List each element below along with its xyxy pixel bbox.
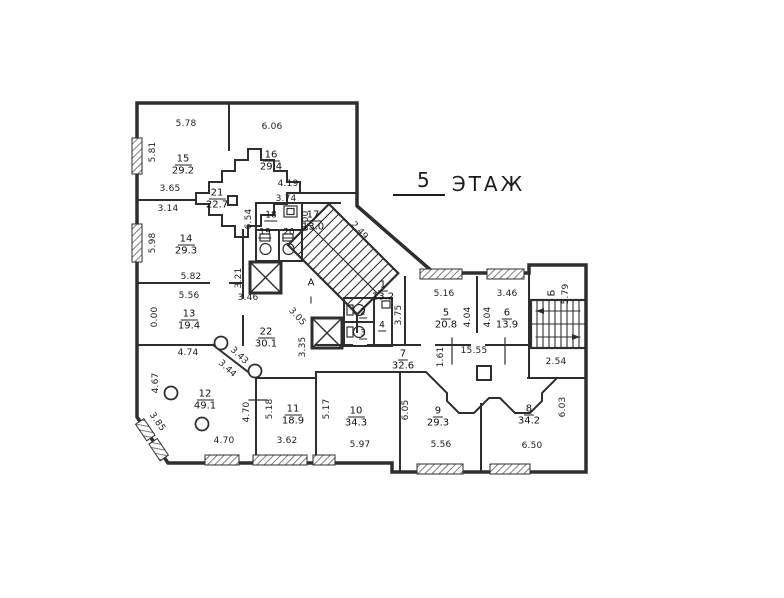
room-label-2: 2 [359, 308, 367, 319]
sink-icon [284, 206, 297, 217]
floor-number: 5 [393, 168, 445, 196]
room-label-22: 2230.1 [255, 321, 277, 350]
dimension: 3.35 [298, 337, 308, 358]
room-number: 9 [433, 406, 443, 418]
dimension: 5.97 [350, 440, 371, 450]
dimension: 6.05 [401, 400, 411, 421]
room-label-9: 929.3 [427, 400, 449, 429]
room-label-10: 1034.3 [345, 400, 367, 429]
elevator-2 [312, 318, 342, 348]
room-label-13: 1319.4 [178, 303, 200, 332]
dimension: 5.81 [148, 142, 158, 163]
room-area: 32.6 [392, 361, 414, 372]
room-number: 13 [181, 309, 198, 321]
dimension: 6.50 [522, 441, 543, 451]
dimension: 4.04 [463, 307, 473, 328]
room-number: 8 [524, 404, 534, 416]
room-area: 13.9 [496, 320, 518, 331]
dimension: 4.67 [151, 373, 161, 394]
room-area: 19.4 [178, 321, 200, 332]
dimension: 5.82 [181, 272, 202, 282]
room-label-20: 20 [282, 228, 295, 239]
dimension: 3.21 [234, 268, 244, 289]
room-area: 22.7 [206, 200, 228, 211]
room-label-14: 1429.3 [175, 228, 197, 257]
room-area: 29.2 [172, 166, 194, 177]
dimension: 5.98 [148, 233, 158, 254]
room-number: 16 [263, 150, 280, 162]
dimension: 6.06 [262, 122, 283, 132]
dimension: 3.46 [497, 289, 518, 299]
room-number: 22 [258, 327, 275, 339]
dimension: 5.17 [322, 399, 332, 420]
dimension: 4.04 [483, 307, 493, 328]
room-label-7: 732.6 [392, 343, 414, 372]
dimension: 4.19 [278, 179, 299, 189]
room-area: 30.1 [255, 339, 277, 350]
dimension: 3.75 [394, 305, 404, 326]
drawing-title: 5 ЭТАЖ [393, 168, 525, 196]
room-number: 15 [175, 154, 192, 166]
toilet-icon [347, 327, 353, 337]
room-label-19: 19 [258, 228, 271, 239]
dimension: 5.56 [431, 440, 452, 450]
room-label-5: 520.8 [435, 302, 457, 331]
room-label-8: 834.2 [518, 398, 540, 427]
dimension: 3.74 [276, 194, 297, 204]
dimension: 3.14 [158, 204, 179, 214]
room-label-3: 3 [359, 329, 367, 340]
room-area: 29.4 [260, 162, 282, 173]
room-number: 10 [348, 406, 365, 418]
room-area: 49.1 [194, 401, 216, 412]
room-area: 34.3 [345, 418, 367, 429]
grid-mark-i: I [310, 296, 313, 307]
dimension: 5.79 [561, 284, 571, 305]
dimension: 3.62 [277, 436, 298, 446]
room-label-12: 1249.1 [194, 383, 216, 412]
secondary-staircase [531, 300, 586, 348]
dimension: 1.61 [436, 347, 446, 368]
room-number: 14 [178, 234, 195, 246]
room-number: 6 [502, 308, 512, 320]
dimension: 0.00 [301, 211, 311, 232]
room-number: 1 [378, 280, 388, 292]
room-area: 29.3 [427, 418, 449, 429]
room-number: 21 [209, 188, 226, 200]
grid-mark-a: А [308, 278, 315, 289]
room-label-18: 18 [264, 211, 277, 222]
room-area: 13.2 [372, 292, 394, 303]
dimension: 6.03 [558, 397, 568, 418]
floor-plan: 5 ЭТАЖ 1529.2 1629.4 2122.7 1429.3 1319.… [0, 0, 784, 598]
room-label-11: 1118.9 [282, 398, 304, 427]
room-label-4: 4 [378, 321, 386, 332]
elevator-1 [250, 262, 281, 293]
room-area: 18.9 [282, 416, 304, 427]
dimension: 4.70 [214, 436, 235, 446]
floor-word: ЭТАЖ [452, 172, 525, 196]
dimension: 4.70 [242, 402, 252, 423]
room-label-1: 113.2 [372, 274, 394, 303]
room-label-15: 1529.2 [172, 148, 194, 177]
dimension: 15.55 [461, 346, 488, 356]
room-label-21: 2122.7 [206, 182, 228, 211]
room-number: 5 [441, 308, 451, 320]
room-area: 34.2 [518, 416, 540, 427]
dimension: 5.18 [265, 399, 275, 420]
dimension: 6.54 [244, 209, 254, 230]
room-number: 7 [398, 349, 408, 361]
dimension: 3.46 [238, 293, 259, 303]
dimension: 5.16 [434, 289, 455, 299]
dimension: 0.00 [150, 307, 160, 328]
dimension: 5.78 [176, 119, 197, 129]
room-area: 20.8 [435, 320, 457, 331]
dimension: 3.65 [160, 184, 181, 194]
room-number: 12 [197, 389, 214, 401]
room-label-6: 613.9 [496, 302, 518, 331]
room-label-16: 1629.4 [260, 144, 282, 173]
grid-mark-b: Б [547, 290, 558, 297]
dimension: 5.56 [179, 291, 200, 301]
dimension: 2.54 [546, 357, 567, 367]
room-area: 29.3 [175, 246, 197, 257]
room-number: 11 [285, 404, 302, 416]
dimension: 4.74 [178, 348, 199, 358]
